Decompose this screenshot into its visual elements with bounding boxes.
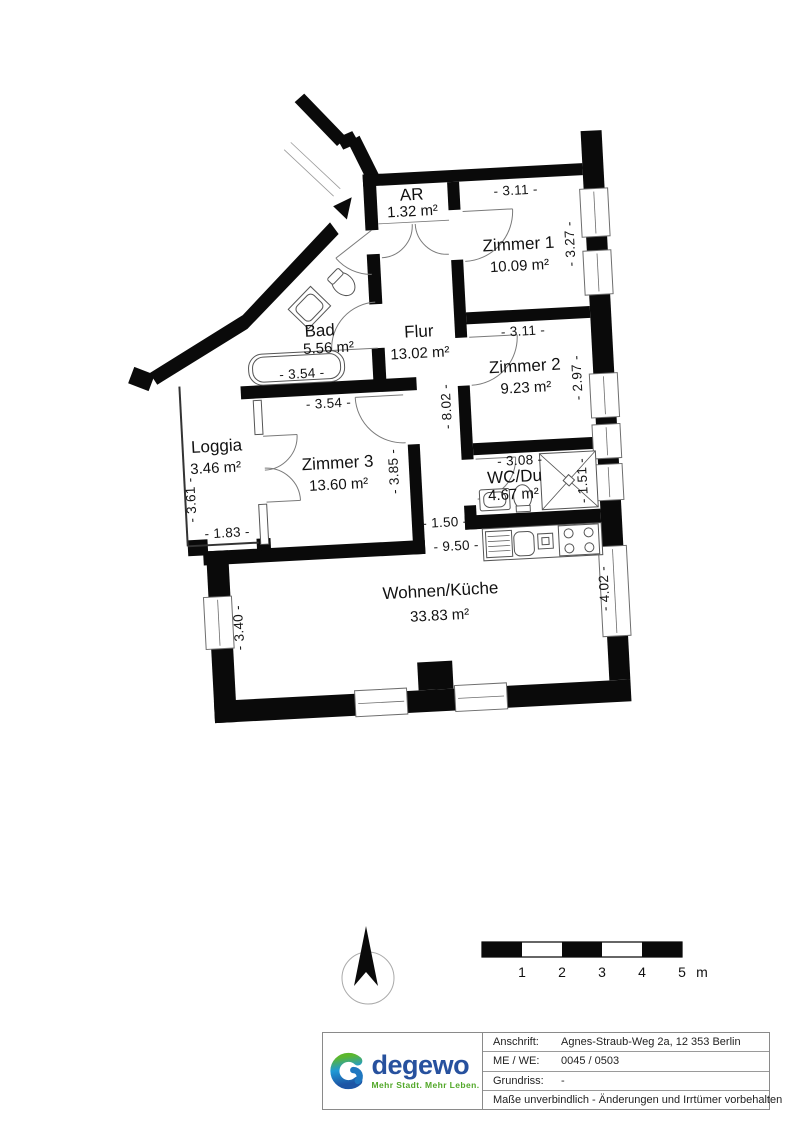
dim-zimmer3-right: - 3.85 -: [385, 448, 402, 494]
title-block-info: Anschrift: Agnes-Straub-Weg 2a, 12 353 B…: [483, 1033, 769, 1109]
scale-tick-5: 5: [678, 964, 686, 980]
door-loggia-b: [265, 466, 301, 502]
dim-bad: - 3.54 -: [279, 365, 325, 382]
dim-zimmer1-right: - 3.27 -: [561, 221, 578, 267]
window-wohnen-bottom-a: [355, 688, 408, 717]
dim-wohnen-top: - 9.50 -: [433, 537, 479, 554]
window-wc: [594, 463, 624, 500]
svg-text:4.67 m²: 4.67 m²: [488, 485, 540, 505]
room-label-zimmer2: Zimmer 2 9.23 m²: [488, 355, 562, 399]
mewe-label: ME / WE:: [483, 1055, 559, 1067]
disclaimer-text: Maße unverbindlich - Änderungen und Irrt…: [483, 1094, 782, 1106]
scale-bar: 1 2 3 4 5 m: [482, 942, 708, 980]
room-label-ar: AR 1.32 m²: [386, 184, 439, 222]
title-row-disclaimer: Maße unverbindlich - Änderungen und Irrt…: [483, 1091, 769, 1109]
room-labels: AR 1.32 m² Zimmer 1 10.09 m² Zimmer 2 9.…: [176, 178, 574, 637]
kitchen-sink-icon: [513, 531, 534, 556]
mewe-value: 0045 / 0503: [559, 1055, 619, 1067]
title-row-anschrift: Anschrift: Agnes-Straub-Weg 2a, 12 353 B…: [483, 1033, 769, 1052]
dim-loggia-bottom: - 1.83 -: [204, 524, 250, 541]
svg-text:10.09 m²: 10.09 m²: [490, 256, 550, 276]
window-zimmer1-a: [580, 188, 610, 237]
dim-wohnen-right: - 4.02 -: [595, 566, 612, 612]
room-label-loggia: Loggia 3.46 m²: [189, 435, 245, 478]
svg-text:13.60 m²: 13.60 m²: [309, 475, 369, 495]
kitchen-counter: [482, 523, 603, 561]
room-label-wc: WC/Du 4.67 m²: [487, 466, 544, 505]
floor-plan-page: - 3.11 - - 3.27 - - 3.11 - - 2.97 - - 3.…: [0, 0, 806, 1140]
svg-text:5.56 m²: 5.56 m²: [303, 338, 355, 358]
logo-tagline: Mehr Stadt. Mehr Leben.: [372, 1080, 480, 1090]
stove-icon: [558, 524, 600, 556]
svg-text:1.32 m²: 1.32 m²: [387, 202, 439, 222]
svg-text:Loggia: Loggia: [191, 435, 244, 457]
svg-text:Zimmer 1: Zimmer 1: [482, 233, 555, 256]
window-zimmer1-b: [583, 250, 613, 295]
room-label-zimmer3: Zimmer 3 13.60 m²: [301, 451, 375, 495]
room-label-bad: Bad 5.56 m²: [302, 319, 355, 358]
dim-loggia-left: - 3.61 -: [182, 477, 199, 523]
door-loggia-a: [263, 434, 299, 470]
walls: [113, 78, 631, 727]
dim-passage: - 1.50 -: [422, 514, 468, 531]
dim-wc-right: - 1.51 -: [574, 458, 591, 504]
dim-zimmer1-top: - 3.11 -: [493, 182, 538, 199]
svg-text:3.46 m²: 3.46 m²: [190, 458, 242, 478]
window-zimmer2-b: [592, 424, 622, 459]
svg-text:13.02 m²: 13.02 m²: [390, 343, 450, 363]
anschrift-label: Anschrift:: [483, 1036, 559, 1048]
svg-text:Zimmer 2: Zimmer 2: [488, 355, 561, 378]
room-label-zimmer1: Zimmer 1 10.09 m²: [482, 233, 556, 277]
svg-text:Zimmer 3: Zimmer 3: [301, 451, 374, 474]
svg-text:Wohnen/Küche: Wohnen/Küche: [382, 578, 499, 603]
title-row-grundriss: Grundriss: -: [483, 1072, 769, 1091]
svg-text:33.83 m²: 33.83 m²: [410, 606, 470, 626]
scale-tick-3: 3: [598, 964, 606, 980]
apartment-plan: - 3.11 - - 3.27 - - 3.11 - - 2.97 - - 3.…: [113, 78, 634, 728]
scale-bar-labels: 1 2 3 4 5 m: [518, 964, 708, 980]
dim-zimmer2-top: - 3.11 -: [501, 322, 546, 339]
floor-plan-drawing: - 3.11 - - 3.27 - - 3.11 - - 2.97 - - 3.…: [0, 0, 806, 1140]
north-arrow-icon: [354, 926, 378, 986]
title-row-mewe: ME / WE: 0045 / 0503: [483, 1052, 769, 1071]
door-ar: [378, 220, 451, 258]
degewo-logo: degewo Mehr Stadt. Mehr Leben.: [323, 1033, 483, 1109]
svg-text:Flur: Flur: [404, 321, 435, 342]
svg-text:9.23 m²: 9.23 m²: [500, 378, 552, 398]
degewo-logo-icon: [326, 1051, 366, 1091]
loggia-glazing: [253, 400, 269, 544]
door-zimmer3: [355, 395, 405, 445]
window-wohnen-bottom-b: [454, 683, 507, 712]
grundriss-value: -: [559, 1075, 565, 1087]
svg-text:AR: AR: [399, 185, 424, 205]
dim-wohnen-left: - 3.40 -: [230, 605, 247, 651]
title-block: degewo Mehr Stadt. Mehr Leben. Anschrift…: [322, 1032, 770, 1110]
entrance-arrow-icon: [333, 197, 353, 220]
dim-zimmer3-top: - 3.54 -: [306, 395, 352, 412]
north-arrow: [342, 926, 394, 1004]
grundriss-label: Grundriss:: [483, 1075, 559, 1087]
dim-flur: - 8.02 -: [438, 384, 455, 430]
scale-tick-2: 2: [558, 964, 566, 980]
logo-wordmark: degewo: [372, 1052, 470, 1078]
room-label-flur: Flur 13.02 m²: [389, 320, 450, 363]
entry-step-lines: [284, 140, 341, 199]
scale-tick-4: 4: [638, 964, 646, 980]
dim-zimmer2-right: - 2.97 -: [568, 355, 585, 401]
scale-unit: m: [696, 964, 708, 980]
window-zimmer2-a: [589, 373, 619, 418]
room-label-wohnen: Wohnen/Küche 33.83 m²: [382, 578, 500, 627]
anschrift-value: Agnes-Straub-Weg 2a, 12 353 Berlin: [559, 1036, 741, 1048]
window-wohnen-left: [203, 596, 234, 649]
scale-tick-1: 1: [518, 964, 526, 980]
svg-text:Bad: Bad: [304, 320, 335, 341]
